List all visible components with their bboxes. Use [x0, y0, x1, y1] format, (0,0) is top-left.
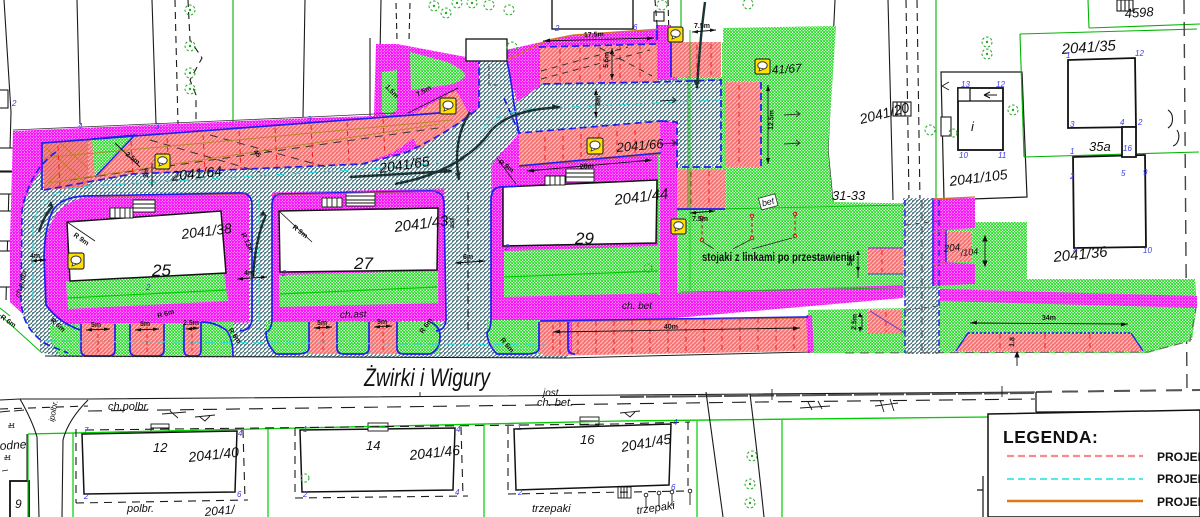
- svg-text:20m: 20m: [580, 163, 595, 171]
- svg-text:11: 11: [998, 151, 1006, 160]
- svg-text:2: 2: [145, 283, 151, 292]
- svg-text:2.5m: 2.5m: [183, 320, 199, 327]
- svg-text:1: 1: [303, 425, 307, 434]
- svg-text:2: 2: [11, 99, 17, 108]
- svg-text:1: 1: [517, 423, 521, 432]
- svg-text:4: 4: [238, 429, 243, 438]
- svg-text:3m: 3m: [143, 168, 150, 178]
- svg-text:8m: 8m: [595, 96, 603, 106]
- svg-text:12: 12: [153, 440, 168, 455]
- svg-text:11: 11: [8, 423, 15, 430]
- svg-text:10: 10: [959, 151, 968, 160]
- svg-text:2: 2: [83, 492, 89, 501]
- svg-text:2: 2: [1137, 118, 1143, 127]
- svg-text:2.5m: 2.5m: [851, 314, 859, 330]
- svg-text:11: 11: [4, 455, 11, 462]
- svg-text:3: 3: [155, 122, 160, 131]
- svg-text:2: 2: [554, 24, 560, 33]
- svg-text:34m: 34m: [1042, 315, 1056, 322]
- svg-text:4: 4: [673, 418, 678, 427]
- svg-text:odne: odne: [0, 437, 27, 453]
- svg-text:6m: 6m: [463, 254, 473, 261]
- svg-text:4: 4: [456, 425, 461, 434]
- svg-text:ch. bet.: ch. bet.: [537, 397, 573, 409]
- svg-text:4: 4: [1073, 246, 1078, 255]
- svg-text:16: 16: [1123, 144, 1132, 153]
- svg-text:5.5m: 5.5m: [603, 52, 611, 68]
- svg-text:40m: 40m: [664, 324, 678, 331]
- svg-text:2: 2: [281, 269, 287, 278]
- svg-text:5m: 5m: [377, 319, 387, 326]
- svg-text:204: 204: [942, 242, 961, 255]
- svg-text:PROJEK: PROJEK: [1157, 472, 1200, 486]
- svg-text:stojaki z linkami po przestawi: stojaki z linkami po przestawieniu: [702, 252, 855, 264]
- svg-text:/104: /104: [959, 246, 978, 258]
- svg-text:4: 4: [455, 488, 460, 497]
- svg-text:6: 6: [633, 23, 638, 32]
- svg-text:ch. bet: ch. bet: [622, 301, 653, 312]
- svg-text:9: 9: [15, 497, 22, 511]
- svg-text:6: 6: [237, 490, 242, 499]
- svg-text:4m: 4m: [244, 270, 254, 277]
- svg-text:2041/: 2041/: [203, 502, 237, 517]
- svg-text:PROJEK: PROJEK: [1157, 450, 1200, 464]
- svg-text:Żwirki i Wigury: Żwirki i Wigury: [363, 364, 491, 392]
- svg-text:4: 4: [1120, 118, 1125, 127]
- svg-text:10: 10: [1143, 246, 1152, 255]
- svg-text:6: 6: [671, 483, 676, 492]
- svg-text:2: 2: [302, 490, 308, 499]
- svg-text:12: 12: [1135, 49, 1144, 58]
- svg-text:5m: 5m: [91, 322, 101, 329]
- svg-text:5m: 5m: [847, 256, 855, 266]
- svg-text:9: 9: [1143, 168, 1148, 177]
- svg-text:2: 2: [504, 243, 510, 252]
- svg-text:7: 7: [84, 426, 89, 435]
- svg-text:35a: 35a: [1089, 139, 1111, 154]
- svg-text:12.5m: 12.5m: [768, 110, 776, 130]
- svg-text:trzepaki: trzepaki: [532, 503, 571, 515]
- svg-text:asf: asf: [449, 217, 456, 228]
- svg-text:5: 5: [1121, 169, 1126, 178]
- svg-text:29: 29: [574, 229, 594, 248]
- svg-text:ch.polbr.: ch.polbr.: [108, 401, 150, 413]
- svg-text:4m: 4m: [30, 253, 40, 260]
- svg-text:31-33: 31-33: [832, 188, 866, 203]
- svg-text:17.5m: 17.5m: [584, 31, 604, 39]
- svg-text:7.5m: 7.5m: [694, 23, 710, 30]
- svg-text:5m: 5m: [140, 321, 150, 328]
- svg-text:16: 16: [580, 432, 595, 447]
- svg-text:2: 2: [1069, 172, 1075, 181]
- svg-text:PROJEK: PROJEK: [1157, 495, 1200, 509]
- svg-text:3: 3: [1070, 120, 1075, 129]
- svg-text:4598: 4598: [1124, 4, 1155, 21]
- svg-text:12: 12: [996, 80, 1005, 89]
- svg-text:2: 2: [517, 488, 523, 497]
- svg-text:1.8: 1.8: [1009, 337, 1017, 347]
- svg-text:ch.ast: ch.ast: [340, 309, 368, 321]
- svg-text:3: 3: [307, 115, 312, 124]
- svg-text:7.5m: 7.5m: [692, 216, 708, 223]
- svg-text:polbr.: polbr.: [126, 503, 154, 515]
- svg-text:27: 27: [353, 254, 373, 273]
- svg-text:25: 25: [151, 261, 171, 280]
- svg-text:1: 1: [1070, 147, 1074, 156]
- svg-text:1: 1: [1066, 51, 1070, 60]
- svg-text:5m: 5m: [317, 320, 327, 327]
- svg-text:4: 4: [78, 122, 83, 131]
- svg-text:LEGENDA:: LEGENDA:: [1003, 427, 1098, 447]
- svg-text:41/67: 41/67: [771, 61, 803, 77]
- svg-text:13: 13: [961, 80, 970, 89]
- svg-text:14: 14: [366, 438, 380, 453]
